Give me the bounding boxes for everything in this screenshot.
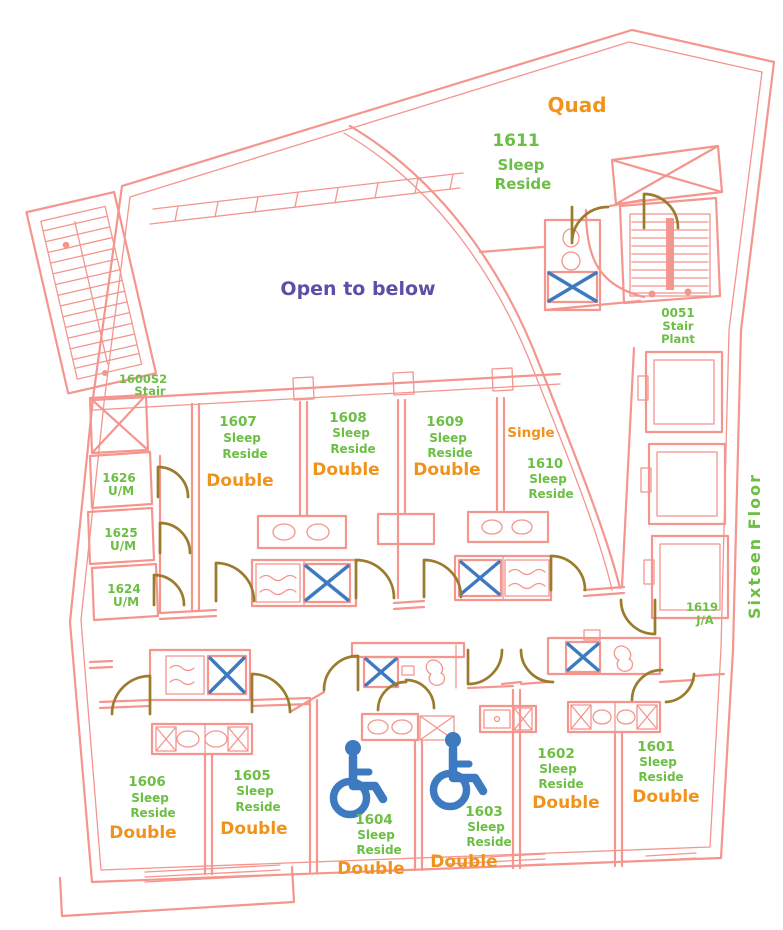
room-1626-number: 1626 — [102, 471, 135, 485]
labels: Open to below Quad 1611 Sleep Reside 005… — [102, 93, 764, 879]
tub-water-lines — [509, 570, 545, 589]
basin — [484, 710, 510, 728]
closet-x — [514, 708, 532, 730]
corridor-bottom-segments — [90, 661, 724, 712]
room-1611-number: 1611 — [492, 131, 539, 151]
room-1607-number: 1607 — [219, 414, 257, 430]
sink-counter — [258, 516, 346, 548]
door-1611-left — [572, 207, 608, 243]
stair-0051-number: 0051 — [661, 306, 694, 320]
rail-post-right — [685, 289, 692, 296]
room-1609-number: 1609 — [426, 414, 464, 430]
room-1610-occupancy: Single — [507, 425, 554, 441]
door-1607 — [216, 563, 254, 601]
stair-tower-left — [26, 192, 156, 393]
bath-pod-1607-1608 — [252, 516, 356, 606]
room-1601-type: Double — [632, 787, 699, 807]
closet-1609 — [378, 514, 434, 544]
elevator-bank — [622, 348, 728, 618]
room-1606-type: Double — [109, 823, 176, 843]
top-window-band — [150, 173, 463, 224]
top-wall-pilasters — [293, 368, 513, 400]
tub — [166, 656, 204, 694]
bath-pod-1602-small — [480, 706, 536, 732]
pod-outline — [150, 650, 250, 700]
door-1625 — [160, 523, 190, 553]
door-1610 — [551, 556, 585, 590]
stair-0051-l1: Stair — [662, 319, 693, 333]
open-to-below-label: Open to below — [280, 278, 435, 300]
room-1605-type: Double — [220, 819, 287, 839]
room-1608-type: Double — [312, 460, 379, 480]
stair-0051-brace — [612, 146, 722, 204]
room-1608-l2: Reside — [330, 442, 375, 456]
shower-x-mark — [210, 658, 244, 692]
sink-oval — [307, 524, 329, 540]
room-1604-l2: Reside — [356, 843, 401, 857]
sink-oval — [512, 520, 532, 534]
room-1611-l1: Sleep — [497, 156, 544, 174]
sink-oval — [482, 520, 502, 534]
top-window-mullions — [175, 174, 453, 221]
room-1609-l2: Reside — [427, 446, 472, 460]
room-1601-l2: Reside — [638, 770, 683, 784]
floor-plan-canvas: Open to below Quad 1611 Sleep Reside 005… — [0, 0, 783, 930]
room-1607-l2: Reside — [222, 447, 267, 461]
room-1626-type: U/M — [108, 484, 134, 498]
stair-0051-rail — [666, 218, 674, 290]
sink-counter — [152, 724, 252, 754]
stair-left-dot-top — [63, 242, 70, 249]
room-1605-number: 1605 — [233, 768, 271, 784]
toilet — [614, 646, 632, 671]
room-1603-type: Double — [430, 852, 497, 872]
bottom-left-ledge — [60, 867, 294, 916]
door-1604 — [324, 656, 358, 690]
room-1610-l2: Reside — [528, 487, 573, 501]
closet-x-right — [228, 727, 248, 751]
shower-x-mark — [366, 659, 396, 685]
curve-inner — [344, 133, 612, 590]
floor-name-label: Sixteen Floor — [745, 473, 764, 619]
room-1602-number: 1602 — [537, 746, 575, 762]
door-pod-inner-right — [406, 680, 434, 708]
accessible-icon-1603 — [434, 732, 484, 807]
room-1606-l2: Reside — [130, 806, 175, 820]
shower-x-mark — [568, 644, 598, 670]
door-1619 — [621, 600, 655, 634]
stair-1600s2-label: Stair — [134, 384, 165, 398]
room-1604-type: Double — [337, 859, 404, 879]
room-1607-l1: Sleep — [223, 431, 261, 445]
room-1603-l1: Sleep — [467, 820, 505, 834]
room-1602-l1: Sleep — [539, 762, 577, 776]
room-1625-type: U/M — [110, 539, 136, 553]
room-1603-l2: Reside — [466, 835, 511, 849]
elevator-2-shaft — [649, 444, 725, 524]
room-1610-number: 1610 — [527, 457, 563, 472]
sink-counter — [362, 714, 418, 740]
elevator-2-cab — [657, 452, 717, 516]
closet-x-left — [571, 705, 591, 729]
room-1606-l1: Sleep — [131, 791, 169, 805]
room-1624-type: U/M — [113, 595, 139, 609]
elevator-1-cab — [654, 360, 714, 424]
room-1610-l1: Sleep — [529, 472, 567, 486]
floor-plan: Open to below Quad 1611 Sleep Reside 005… — [0, 0, 783, 930]
sink-oval — [273, 524, 295, 540]
corridor-top-wall — [160, 587, 624, 619]
door-1626 — [158, 467, 188, 497]
stair-0051-l2: Plant — [661, 332, 695, 346]
elevator-hall-wall — [622, 348, 634, 586]
room-1625-number: 1625 — [104, 526, 137, 540]
room-1605-l2: Reside — [235, 800, 280, 814]
rail-post-left — [649, 291, 656, 298]
bath-pod-1604-1603 — [352, 643, 464, 740]
room-1608-l1: Sleep — [332, 426, 370, 440]
bath-pod-1609-1610 — [455, 512, 551, 600]
room-1605-l1: Sleep — [236, 784, 274, 798]
accessible-icon-1604 — [334, 740, 384, 815]
sink-oval — [177, 731, 199, 747]
sink-oval — [392, 720, 412, 734]
sink-oval — [368, 720, 388, 734]
room-1607-type: Double — [206, 471, 273, 491]
shower-x-mark — [461, 562, 499, 594]
sink-counter — [468, 512, 548, 542]
door-1608 — [356, 560, 394, 598]
bath-pod-1602-1601 — [548, 630, 660, 732]
stair-0051 — [612, 146, 722, 303]
sink-oval — [205, 731, 227, 747]
room-1606-number: 1606 — [128, 774, 166, 790]
bath-pod-1606-1605 — [150, 650, 252, 754]
sink-1611 — [562, 252, 580, 270]
room-1602-l2: Reside — [538, 777, 583, 791]
closet-x-left — [156, 727, 176, 751]
room-1601-l1: Sleep — [639, 755, 677, 769]
room-1608-number: 1608 — [329, 410, 367, 426]
service-elevator-box — [90, 395, 148, 453]
drain-dot — [495, 717, 500, 722]
room-1624-number: 1624 — [107, 582, 140, 596]
sink-oval — [593, 710, 611, 724]
room-1611-l2: Reside — [495, 175, 552, 193]
janitor-number: 1619 — [686, 600, 718, 614]
room-1603-number: 1603 — [465, 804, 503, 820]
room-1604-number: 1604 — [355, 812, 393, 828]
door-1601-b — [666, 674, 694, 702]
corridor-bottom-walls — [90, 661, 724, 712]
sink-oval — [617, 710, 635, 724]
small-fixture — [402, 666, 414, 675]
janitor-label: J/A — [695, 613, 713, 627]
tub — [505, 560, 549, 596]
shower-1611-x-mark — [549, 273, 596, 301]
curve-outer — [350, 126, 620, 588]
door-1603 — [468, 650, 502, 684]
room-1602-type: Double — [532, 793, 599, 813]
elevator-1-shaft — [646, 352, 722, 432]
room-1609-type: Double — [413, 460, 480, 480]
shower-x-mark — [306, 566, 348, 600]
quad-label: Quad — [547, 93, 606, 117]
tub — [256, 564, 300, 602]
room-1601-number: 1601 — [637, 739, 675, 755]
toilet — [426, 660, 444, 685]
tub-water-lines — [170, 666, 194, 685]
curved-wall — [344, 126, 620, 590]
pod-outline — [548, 638, 660, 674]
room-1604-l1: Sleep — [357, 828, 395, 842]
closet-x-right — [637, 705, 657, 729]
stair-left-dot-bottom — [102, 370, 108, 376]
pod-top-wall — [352, 643, 464, 657]
tub-water-lines — [260, 576, 296, 595]
room-1609-l1: Sleep — [429, 431, 467, 445]
